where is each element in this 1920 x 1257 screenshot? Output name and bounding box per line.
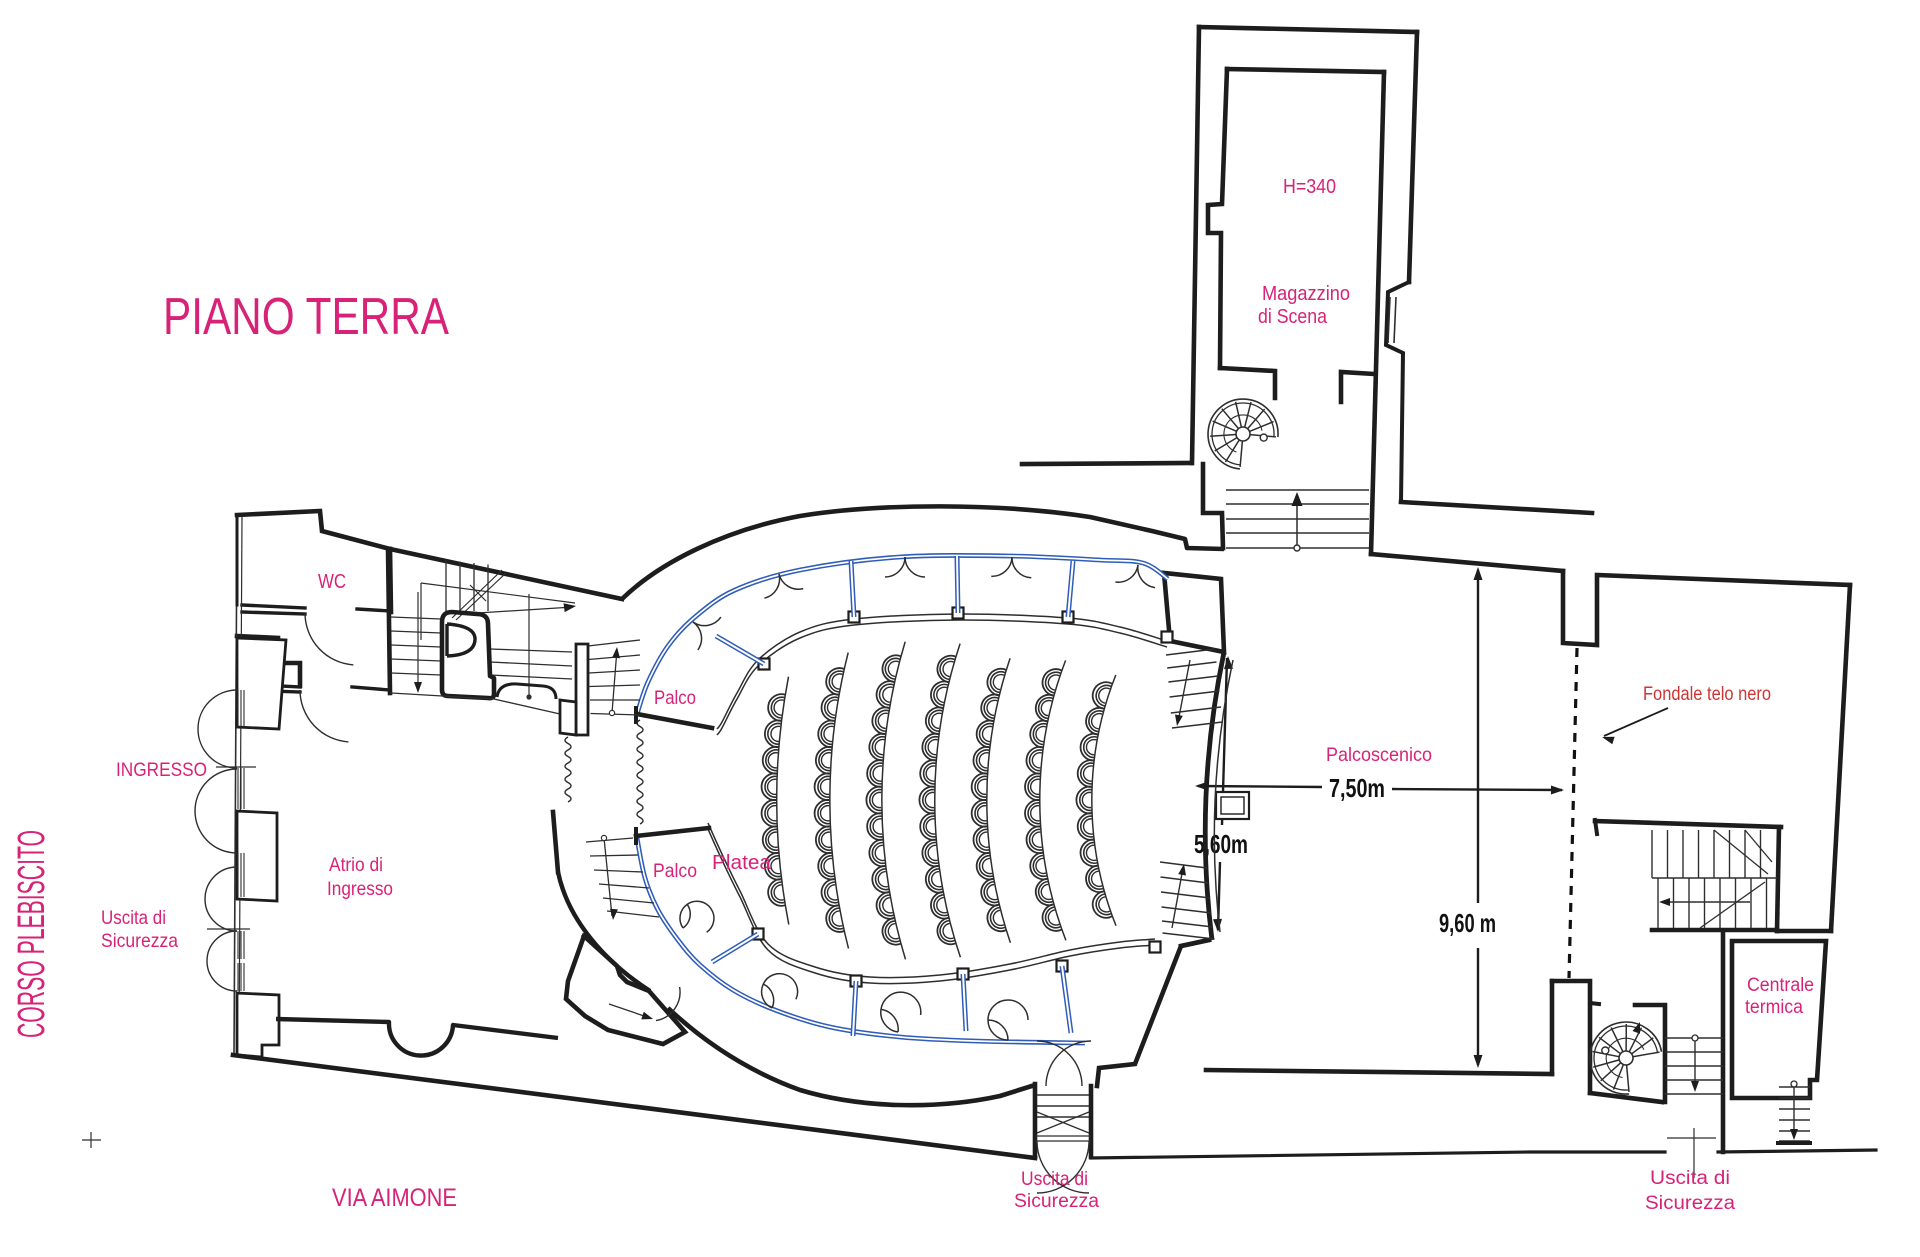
svg-text:Palco: Palco [653, 860, 697, 882]
svg-text:Sicurezza: Sicurezza [1645, 1193, 1735, 1214]
svg-text:Uscita di: Uscita di [1021, 1169, 1088, 1190]
svg-text:Platea: Platea [712, 852, 772, 874]
svg-text:Magazzino: Magazzino [1262, 283, 1350, 305]
svg-text:Uscita di: Uscita di [101, 907, 166, 929]
svg-text:7,50m: 7,50m [1329, 773, 1385, 803]
svg-text:5,60m: 5,60m [1194, 829, 1248, 859]
svg-text:termica: termica [1745, 997, 1803, 1018]
svg-text:H=340: H=340 [1283, 176, 1336, 198]
svg-text:Palcoscenico: Palcoscenico [1326, 744, 1432, 766]
svg-text:CORSO PLEBISCITO: CORSO PLEBISCITO [11, 830, 53, 1038]
svg-text:Ingresso: Ingresso [327, 878, 393, 900]
svg-text:Centrale: Centrale [1747, 975, 1814, 996]
svg-text:9,60 m: 9,60 m [1439, 908, 1496, 938]
svg-text:Sicurezza: Sicurezza [101, 930, 178, 952]
svg-text:WC: WC [318, 571, 346, 593]
svg-text:Fondale telo nero: Fondale telo nero [1643, 684, 1771, 705]
svg-text:INGRESSO: INGRESSO [116, 759, 207, 781]
svg-text:Uscita di: Uscita di [1650, 1168, 1730, 1189]
svg-text:VIA AIMONE: VIA AIMONE [332, 1184, 457, 1212]
svg-text:Sicurezza: Sicurezza [1014, 1191, 1099, 1212]
svg-text:PIANO TERRA: PIANO TERRA [163, 288, 449, 346]
svg-text:di Scena: di Scena [1258, 306, 1328, 328]
svg-text:Atrio di: Atrio di [329, 854, 383, 876]
svg-text:Palco: Palco [654, 687, 696, 709]
